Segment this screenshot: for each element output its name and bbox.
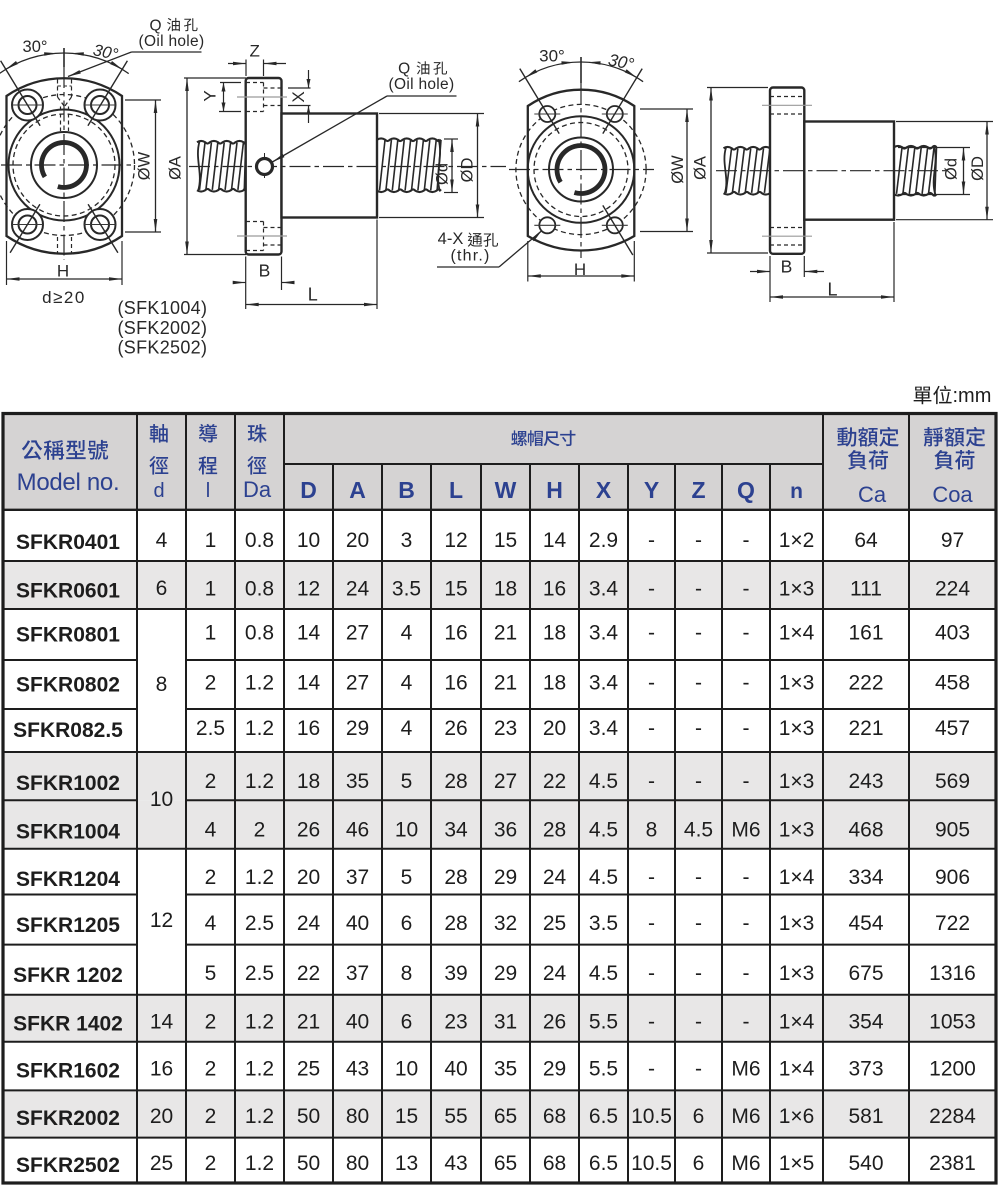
svg-text:12: 12 bbox=[444, 529, 467, 552]
svg-text:SFKR1204: SFKR1204 bbox=[16, 868, 120, 891]
svg-text:31: 31 bbox=[494, 1011, 517, 1034]
svg-text:222: 222 bbox=[848, 672, 883, 695]
svg-text:64: 64 bbox=[854, 529, 878, 552]
svg-text:18: 18 bbox=[297, 770, 320, 793]
svg-text:14: 14 bbox=[543, 529, 567, 552]
svg-text:SFKR2002: SFKR2002 bbox=[16, 1107, 120, 1130]
svg-text:8: 8 bbox=[401, 962, 413, 985]
svg-text:10: 10 bbox=[297, 529, 320, 552]
svg-text:24: 24 bbox=[543, 866, 567, 889]
svg-text:5: 5 bbox=[401, 770, 413, 793]
svg-text:1: 1 bbox=[205, 622, 217, 645]
svg-text:X: X bbox=[596, 477, 612, 503]
svg-text:2: 2 bbox=[205, 866, 217, 889]
svg-text:10: 10 bbox=[395, 1058, 418, 1081]
svg-text:3.4: 3.4 bbox=[589, 717, 619, 740]
svg-text:-: - bbox=[648, 962, 655, 985]
svg-text:(Oil hole): (Oil hole) bbox=[139, 33, 205, 50]
svg-text:1.2: 1.2 bbox=[245, 1011, 274, 1034]
svg-text:Z: Z bbox=[250, 41, 260, 60]
svg-text:50: 50 bbox=[297, 1105, 320, 1128]
svg-text:27: 27 bbox=[346, 672, 369, 695]
svg-text:ØA: ØA bbox=[166, 156, 184, 180]
svg-text:46: 46 bbox=[346, 819, 369, 842]
svg-text:-: - bbox=[695, 672, 702, 695]
svg-text:1.2: 1.2 bbox=[245, 1105, 274, 1128]
svg-text:d: d bbox=[153, 480, 164, 502]
svg-text:35: 35 bbox=[494, 1058, 517, 1081]
svg-text:B: B bbox=[398, 477, 415, 503]
svg-text:(Oil hole): (Oil hole) bbox=[389, 76, 455, 93]
svg-text:1×5: 1×5 bbox=[779, 1152, 815, 1175]
svg-text:M6: M6 bbox=[731, 1058, 760, 1081]
svg-text:28: 28 bbox=[543, 819, 566, 842]
svg-text:4-X: 4-X bbox=[438, 230, 464, 248]
svg-text:-: - bbox=[743, 672, 750, 695]
svg-text:-: - bbox=[695, 912, 702, 935]
svg-text:32: 32 bbox=[494, 912, 517, 935]
svg-text:Y: Y bbox=[200, 90, 219, 101]
svg-text:4: 4 bbox=[401, 622, 413, 645]
svg-text:SFKR1004: SFKR1004 bbox=[16, 821, 120, 844]
svg-text:-: - bbox=[695, 717, 702, 740]
svg-text:-: - bbox=[695, 622, 702, 645]
svg-text:40: 40 bbox=[444, 1058, 467, 1081]
svg-text:3.4: 3.4 bbox=[589, 622, 619, 645]
svg-text:1×3: 1×3 bbox=[779, 717, 815, 740]
svg-text:21: 21 bbox=[494, 622, 517, 645]
svg-text:10: 10 bbox=[395, 819, 418, 842]
svg-text:27: 27 bbox=[346, 622, 369, 645]
svg-text:25: 25 bbox=[543, 912, 566, 935]
svg-text:d≥20: d≥20 bbox=[42, 288, 86, 307]
svg-text:21: 21 bbox=[494, 672, 517, 695]
svg-text:(SFK2002): (SFK2002) bbox=[118, 318, 208, 338]
svg-text:Da: Da bbox=[243, 477, 272, 502]
svg-text:1×3: 1×3 bbox=[779, 819, 815, 842]
svg-text:-: - bbox=[695, 770, 702, 793]
svg-text:1200: 1200 bbox=[929, 1058, 976, 1081]
svg-text:Ca: Ca bbox=[858, 482, 887, 507]
svg-text:ØW: ØW bbox=[136, 151, 154, 180]
svg-text:24: 24 bbox=[297, 912, 321, 935]
svg-text:16: 16 bbox=[150, 1058, 173, 1081]
svg-text:1.2: 1.2 bbox=[245, 717, 274, 740]
svg-text:1×4: 1×4 bbox=[779, 622, 815, 645]
svg-text:458: 458 bbox=[935, 672, 970, 695]
svg-text:-: - bbox=[743, 962, 750, 985]
svg-text:3.4: 3.4 bbox=[589, 672, 619, 695]
svg-text:Q: Q bbox=[149, 18, 161, 35]
svg-text:27: 27 bbox=[494, 770, 517, 793]
svg-text:28: 28 bbox=[444, 866, 467, 889]
svg-text:6: 6 bbox=[693, 1105, 705, 1128]
svg-text:905: 905 bbox=[935, 819, 970, 842]
svg-text:1.2: 1.2 bbox=[245, 770, 274, 793]
svg-text:50: 50 bbox=[297, 1152, 320, 1175]
svg-text:20: 20 bbox=[346, 529, 369, 552]
svg-text:224: 224 bbox=[935, 578, 970, 601]
svg-text:1×6: 1×6 bbox=[779, 1105, 815, 1128]
svg-text:18: 18 bbox=[543, 622, 566, 645]
svg-text:0.8: 0.8 bbox=[245, 578, 274, 601]
svg-text:-: - bbox=[743, 717, 750, 740]
svg-text:SFKR0801: SFKR0801 bbox=[16, 624, 120, 647]
svg-text:34: 34 bbox=[444, 819, 468, 842]
svg-text:-: - bbox=[695, 578, 702, 601]
svg-text:8: 8 bbox=[646, 819, 658, 842]
svg-text:15: 15 bbox=[395, 1105, 418, 1128]
svg-text:30°: 30° bbox=[23, 38, 48, 56]
svg-text:-: - bbox=[648, 622, 655, 645]
svg-text:Q: Q bbox=[737, 477, 755, 503]
svg-text:722: 722 bbox=[935, 912, 970, 935]
svg-text:28: 28 bbox=[444, 770, 467, 793]
svg-text:22: 22 bbox=[297, 962, 320, 985]
svg-text::mm: :mm bbox=[953, 385, 992, 407]
svg-text:40: 40 bbox=[346, 912, 369, 935]
svg-text:16: 16 bbox=[444, 672, 467, 695]
svg-text:2.5: 2.5 bbox=[245, 912, 274, 935]
svg-text:X: X bbox=[289, 91, 308, 102]
svg-text:37: 37 bbox=[346, 962, 369, 985]
svg-text:6: 6 bbox=[401, 912, 413, 935]
svg-text:2: 2 bbox=[205, 1152, 217, 1175]
svg-text:14: 14 bbox=[297, 622, 321, 645]
svg-text:1316: 1316 bbox=[929, 962, 976, 985]
svg-text:-: - bbox=[648, 1011, 655, 1034]
svg-text:454: 454 bbox=[848, 912, 883, 935]
svg-text:4: 4 bbox=[401, 717, 413, 740]
svg-text:4: 4 bbox=[401, 672, 413, 695]
svg-text:5.5: 5.5 bbox=[589, 1058, 618, 1081]
svg-text:-: - bbox=[743, 578, 750, 601]
svg-text:4: 4 bbox=[156, 529, 168, 552]
svg-text:906: 906 bbox=[935, 866, 970, 889]
svg-text:ØD: ØD bbox=[458, 158, 476, 183]
svg-text:68: 68 bbox=[543, 1152, 566, 1175]
svg-text:12: 12 bbox=[297, 578, 320, 601]
svg-text:65: 65 bbox=[494, 1105, 517, 1128]
svg-text:24: 24 bbox=[543, 962, 567, 985]
svg-text:24: 24 bbox=[346, 578, 370, 601]
svg-text:8: 8 bbox=[156, 673, 168, 696]
svg-text:5: 5 bbox=[401, 866, 413, 889]
svg-text:-: - bbox=[648, 717, 655, 740]
svg-text:2: 2 bbox=[205, 1105, 217, 1128]
svg-text:15: 15 bbox=[444, 578, 467, 601]
svg-text:18: 18 bbox=[494, 578, 517, 601]
svg-text:457: 457 bbox=[935, 717, 970, 740]
svg-text:SFKR 1402: SFKR 1402 bbox=[13, 1013, 123, 1036]
svg-text:M6: M6 bbox=[731, 1105, 760, 1128]
svg-text:20: 20 bbox=[297, 866, 320, 889]
svg-text:H: H bbox=[574, 260, 586, 279]
svg-text:23: 23 bbox=[444, 1011, 467, 1034]
svg-text:L: L bbox=[308, 285, 318, 305]
svg-text:1.2: 1.2 bbox=[245, 1152, 274, 1175]
svg-text:M6: M6 bbox=[731, 819, 760, 842]
svg-text:-: - bbox=[743, 529, 750, 552]
svg-text:3.4: 3.4 bbox=[589, 578, 619, 601]
svg-text:SFKR0401: SFKR0401 bbox=[16, 531, 120, 554]
svg-text:-: - bbox=[648, 578, 655, 601]
svg-text:43: 43 bbox=[346, 1058, 369, 1081]
svg-text:Z: Z bbox=[691, 477, 705, 503]
svg-text:334: 334 bbox=[848, 866, 883, 889]
svg-text:D: D bbox=[300, 477, 317, 503]
svg-text:(SFK1004): (SFK1004) bbox=[118, 298, 208, 318]
svg-text:Coa: Coa bbox=[932, 482, 973, 507]
svg-text:Q: Q bbox=[398, 61, 410, 78]
svg-text:-: - bbox=[648, 770, 655, 793]
svg-text:37: 37 bbox=[346, 866, 369, 889]
svg-text:25: 25 bbox=[150, 1152, 173, 1175]
svg-text:1×3: 1×3 bbox=[779, 912, 815, 935]
svg-text:Y: Y bbox=[644, 477, 659, 503]
svg-text:10: 10 bbox=[150, 788, 173, 811]
svg-text:SFKR1205: SFKR1205 bbox=[16, 914, 120, 937]
svg-text:25: 25 bbox=[297, 1058, 320, 1081]
svg-text:68: 68 bbox=[543, 1105, 566, 1128]
svg-text:-: - bbox=[648, 912, 655, 935]
svg-text:2381: 2381 bbox=[929, 1152, 976, 1175]
svg-text:3: 3 bbox=[401, 529, 413, 552]
svg-text:-: - bbox=[695, 1058, 702, 1081]
svg-text:-: - bbox=[695, 1011, 702, 1034]
svg-text:30°: 30° bbox=[539, 47, 565, 66]
svg-text:SFKR1002: SFKR1002 bbox=[16, 772, 120, 795]
svg-text:1×3: 1×3 bbox=[779, 962, 815, 985]
svg-text:-: - bbox=[743, 622, 750, 645]
svg-text:26: 26 bbox=[297, 819, 320, 842]
svg-text:4.5: 4.5 bbox=[589, 770, 618, 793]
svg-text:403: 403 bbox=[935, 622, 970, 645]
svg-text:26: 26 bbox=[543, 1011, 566, 1034]
svg-text:1.2: 1.2 bbox=[245, 1058, 274, 1081]
svg-text:4.5: 4.5 bbox=[589, 819, 618, 842]
svg-text:221: 221 bbox=[848, 717, 883, 740]
svg-text:1: 1 bbox=[205, 529, 217, 552]
svg-text:-: - bbox=[743, 866, 750, 889]
svg-text:13: 13 bbox=[395, 1152, 418, 1175]
svg-text:0.8: 0.8 bbox=[245, 622, 274, 645]
svg-text:39: 39 bbox=[444, 962, 467, 985]
svg-text:-: - bbox=[695, 866, 702, 889]
svg-text:354: 354 bbox=[848, 1011, 883, 1034]
svg-text:ØD: ØD bbox=[969, 156, 987, 181]
svg-text:SFKR0601: SFKR0601 bbox=[16, 580, 120, 603]
svg-text:675: 675 bbox=[848, 962, 883, 985]
svg-text:3.5: 3.5 bbox=[589, 912, 618, 935]
svg-text:65: 65 bbox=[494, 1152, 517, 1175]
svg-text:-: - bbox=[695, 529, 702, 552]
svg-text:22: 22 bbox=[543, 770, 566, 793]
svg-text:M6: M6 bbox=[731, 1152, 760, 1175]
svg-text:55: 55 bbox=[444, 1105, 467, 1128]
svg-text:(thr.): (thr.) bbox=[450, 248, 490, 265]
svg-text:29: 29 bbox=[494, 866, 517, 889]
svg-text:20: 20 bbox=[543, 717, 566, 740]
svg-text:1×3: 1×3 bbox=[779, 672, 815, 695]
svg-text:Ød: Ød bbox=[433, 163, 451, 185]
svg-text:-: - bbox=[648, 529, 655, 552]
svg-text:B: B bbox=[259, 261, 271, 281]
svg-text:6: 6 bbox=[693, 1152, 705, 1175]
svg-text:1.2: 1.2 bbox=[245, 672, 274, 695]
svg-text:2: 2 bbox=[205, 1058, 217, 1081]
svg-text:21: 21 bbox=[297, 1011, 320, 1034]
svg-text:ØA: ØA bbox=[691, 156, 709, 180]
svg-text:2: 2 bbox=[254, 819, 266, 842]
svg-text:4.5: 4.5 bbox=[589, 962, 618, 985]
svg-text:468: 468 bbox=[848, 819, 883, 842]
svg-text:SFKR0802: SFKR0802 bbox=[16, 674, 120, 697]
svg-text:-: - bbox=[695, 962, 702, 985]
svg-text:5.5: 5.5 bbox=[589, 1011, 618, 1034]
svg-text:43: 43 bbox=[444, 1152, 467, 1175]
svg-text:H: H bbox=[546, 477, 563, 503]
svg-text:14: 14 bbox=[150, 1011, 174, 1034]
svg-text:243: 243 bbox=[848, 770, 883, 793]
svg-text:161: 161 bbox=[848, 622, 883, 645]
svg-text:L: L bbox=[827, 280, 837, 300]
svg-text:6: 6 bbox=[401, 1011, 413, 1034]
svg-text:1×2: 1×2 bbox=[779, 529, 815, 552]
svg-text:SFKR1602: SFKR1602 bbox=[16, 1060, 120, 1083]
svg-text:20: 20 bbox=[150, 1105, 173, 1128]
svg-text:26: 26 bbox=[444, 717, 467, 740]
svg-text:2.9: 2.9 bbox=[589, 529, 618, 552]
svg-text:SFKR082.5: SFKR082.5 bbox=[13, 719, 123, 742]
svg-text:W: W bbox=[495, 477, 517, 503]
svg-text:540: 540 bbox=[848, 1152, 883, 1175]
svg-text:2: 2 bbox=[205, 1011, 217, 1034]
svg-text:-: - bbox=[743, 770, 750, 793]
svg-text:6: 6 bbox=[156, 577, 168, 600]
svg-text:-: - bbox=[648, 1058, 655, 1081]
svg-text:35: 35 bbox=[346, 770, 369, 793]
svg-text:4.5: 4.5 bbox=[589, 866, 618, 889]
svg-text:5: 5 bbox=[205, 962, 217, 985]
svg-text:1.2: 1.2 bbox=[245, 866, 274, 889]
svg-text:1×4: 1×4 bbox=[779, 866, 815, 889]
svg-text:4.5: 4.5 bbox=[684, 819, 713, 842]
svg-text:12: 12 bbox=[150, 909, 173, 932]
svg-text:16: 16 bbox=[297, 717, 320, 740]
svg-text:(SFK2502): (SFK2502) bbox=[118, 338, 208, 358]
svg-text:-: - bbox=[648, 672, 655, 695]
svg-text:29: 29 bbox=[543, 1058, 566, 1081]
svg-text:1053: 1053 bbox=[929, 1011, 976, 1034]
svg-text:16: 16 bbox=[543, 578, 566, 601]
svg-text:-: - bbox=[743, 912, 750, 935]
svg-text:3.5: 3.5 bbox=[392, 578, 421, 601]
svg-text:1×3: 1×3 bbox=[779, 578, 815, 601]
svg-text:B: B bbox=[781, 257, 793, 277]
svg-text:2.5: 2.5 bbox=[245, 962, 274, 985]
svg-text:97: 97 bbox=[941, 529, 964, 552]
svg-text:14: 14 bbox=[297, 672, 321, 695]
svg-text:581: 581 bbox=[848, 1105, 883, 1128]
svg-text:23: 23 bbox=[494, 717, 517, 740]
svg-text:15: 15 bbox=[494, 529, 517, 552]
svg-text:Ød: Ød bbox=[942, 158, 960, 180]
svg-text:1: 1 bbox=[205, 578, 217, 601]
svg-text:18: 18 bbox=[543, 672, 566, 695]
svg-text:10.5: 10.5 bbox=[631, 1105, 672, 1128]
svg-text:2: 2 bbox=[205, 770, 217, 793]
svg-text:4: 4 bbox=[205, 819, 217, 842]
svg-text:80: 80 bbox=[346, 1152, 369, 1175]
svg-text:28: 28 bbox=[444, 912, 467, 935]
svg-text:n: n bbox=[790, 480, 803, 503]
svg-text:6.5: 6.5 bbox=[589, 1105, 618, 1128]
svg-text:111: 111 bbox=[850, 578, 882, 601]
svg-text:1×4: 1×4 bbox=[779, 1058, 815, 1081]
svg-text:H: H bbox=[57, 262, 69, 281]
svg-text:569: 569 bbox=[935, 770, 970, 793]
svg-text:80: 80 bbox=[346, 1105, 369, 1128]
svg-text:29: 29 bbox=[346, 717, 369, 740]
svg-text:2: 2 bbox=[205, 672, 217, 695]
svg-text:10.5: 10.5 bbox=[631, 1152, 672, 1175]
svg-text:-: - bbox=[743, 1011, 750, 1034]
svg-text:29: 29 bbox=[494, 962, 517, 985]
svg-text:-: - bbox=[648, 866, 655, 889]
svg-text:6.5: 6.5 bbox=[589, 1152, 618, 1175]
svg-text:16: 16 bbox=[444, 622, 467, 645]
svg-text:1×3: 1×3 bbox=[779, 770, 815, 793]
svg-text:ØW: ØW bbox=[669, 155, 687, 184]
svg-text:L: L bbox=[449, 477, 463, 503]
svg-text:Model no.: Model no. bbox=[17, 469, 120, 496]
svg-text:A: A bbox=[349, 477, 366, 503]
svg-text:0.8: 0.8 bbox=[245, 529, 274, 552]
svg-text:4: 4 bbox=[205, 912, 217, 935]
svg-text:2.5: 2.5 bbox=[196, 717, 225, 740]
svg-text:SFKR2502: SFKR2502 bbox=[16, 1154, 120, 1177]
svg-text:l: l bbox=[206, 480, 210, 502]
svg-text:373: 373 bbox=[848, 1058, 883, 1081]
svg-text:SFKR 1202: SFKR 1202 bbox=[13, 964, 123, 987]
svg-text:40: 40 bbox=[346, 1011, 369, 1034]
svg-text:1×4: 1×4 bbox=[779, 1011, 815, 1034]
svg-text:36: 36 bbox=[494, 819, 517, 842]
svg-text:2284: 2284 bbox=[929, 1105, 976, 1128]
